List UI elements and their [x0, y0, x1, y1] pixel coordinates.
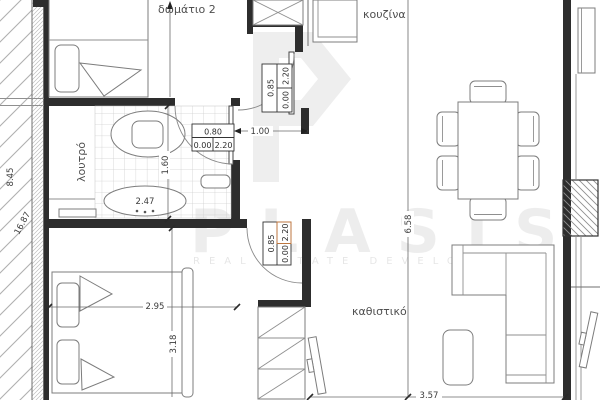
wall-bath-north [44, 98, 175, 106]
door-kitchen-height: 2.20 [282, 67, 291, 85]
label-kitchen: κουζίνα [363, 8, 406, 21]
door-spec-kitchen: 0.85 0.00 2.20 [262, 64, 292, 112]
shelf-icon [59, 209, 96, 217]
left-wall [44, 0, 49, 400]
dim-bath-length: 1.60 [161, 156, 171, 175]
label-bedroom-2: δωμάτιο 2 [158, 3, 216, 16]
wall-bedroom2-east [247, 0, 253, 34]
dim-side-upper: 8.45 [6, 168, 16, 187]
toilet-icon [111, 111, 185, 157]
door-spec-bedroom: 0.85 0.00 2.20 [263, 222, 291, 265]
dim-hall-width: 1.00 [251, 127, 270, 137]
wall-hatch-band [0, 0, 32, 400]
door-bath-width: 0.80 [204, 128, 222, 137]
door-spec-bath: 0.80 0.00 2.20 [192, 124, 234, 151]
wall-kitchen-entry [295, 27, 303, 52]
door-bedroom-height: 2.20 [281, 224, 290, 242]
dim-bath-width: 2.47 [136, 197, 155, 207]
wall-bedroom-north [44, 219, 247, 228]
door-bath-height: 2.20 [215, 141, 233, 150]
wall-bath-east [231, 160, 240, 228]
bed-2-icon [49, 0, 148, 97]
dim-living-width: 3.57 [420, 391, 439, 400]
insulation-strip [33, 0, 44, 400]
door-kitchen-width: 0.85 [267, 79, 276, 97]
living-closet-icon [258, 307, 305, 399]
dim-bedroom-length: 3.18 [169, 335, 179, 354]
door-kitchen-sill: 0.00 [282, 91, 291, 109]
door-bedroom-width: 0.85 [267, 235, 276, 253]
kitchen-counter-icon [313, 0, 357, 42]
balcony-tv-icon [574, 311, 597, 368]
tv-icon [303, 337, 326, 395]
wall-living-west [302, 219, 311, 307]
dim-living-length: 6.58 [404, 215, 414, 234]
dining-table-icon [458, 102, 518, 199]
dim-bedroom-width: 2.95 [146, 302, 165, 312]
floor-plan-page: PLASIS REAL ESTATE DEVELOPMENT [0, 0, 600, 400]
label-living-room: καθιστικό [352, 305, 407, 318]
column-hatch [563, 180, 598, 236]
corner-sink-icon [201, 175, 230, 188]
balcony-counter-icon [578, 8, 595, 73]
wardrobe-icon [253, 0, 303, 25]
floor-plan-canvas: PLASIS REAL ESTATE DEVELOPMENT [0, 0, 600, 400]
door-bedroom-sill: 0.00 [281, 245, 290, 263]
exterior-wall-hatch [0, 0, 49, 400]
label-bathroom: λουτρό [75, 142, 88, 182]
watermark: PLASIS REAL ESTATE DEVELOPMENT [190, 32, 583, 267]
armchair-icon [443, 330, 473, 385]
door-bath-sill: 0.00 [194, 141, 212, 150]
